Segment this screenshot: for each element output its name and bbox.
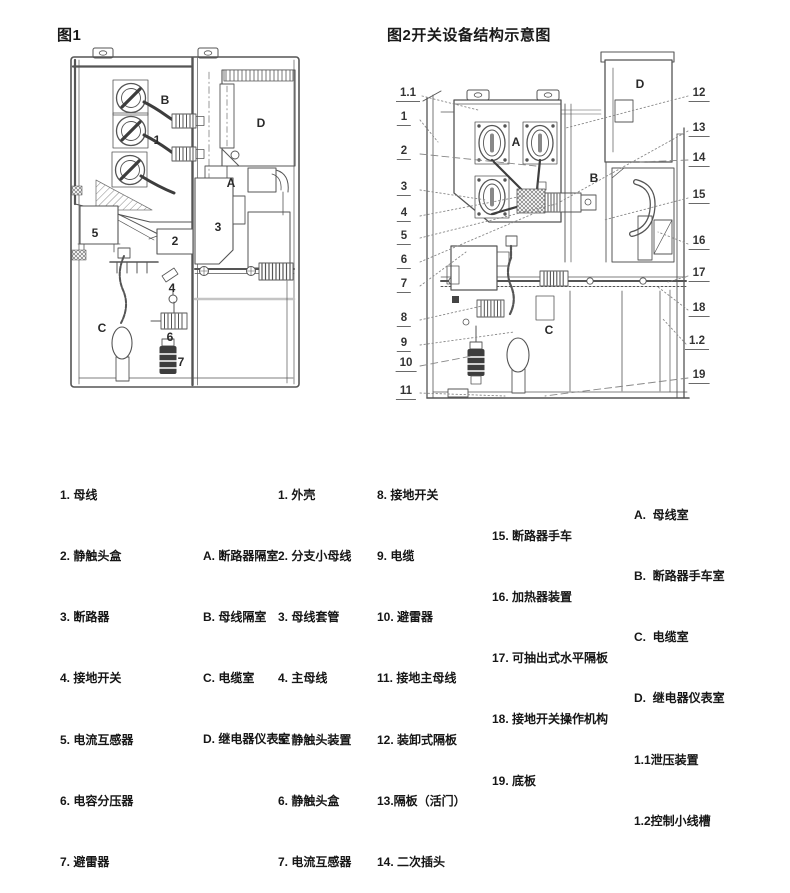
legend-item: 1.1泄压装置 xyxy=(634,750,725,770)
legend-item: 8. 接地开关 xyxy=(377,485,466,505)
legend-item: 7. 电流互感器 xyxy=(278,852,351,872)
legend-item: C. 电缆室 xyxy=(634,627,725,647)
fig1-label-1: 1 xyxy=(154,134,161,146)
fig1-label-7: 7 xyxy=(178,356,185,368)
legend-item: A. 母线室 xyxy=(634,505,725,525)
fig2-label-B: B xyxy=(590,172,599,184)
fig1-label-5: 5 xyxy=(92,227,99,239)
fig1-label-A: A xyxy=(227,177,236,189)
fig1-label-C: C xyxy=(98,322,107,334)
fig2-callout-4: 4 xyxy=(397,207,411,222)
legend-item: 2. 静触头盒 xyxy=(60,546,133,566)
legend-item: 4. 接地开关 xyxy=(60,668,133,688)
legend-item: 1. 母线 xyxy=(60,485,133,505)
page: { "titles": { "fig1": "图1", "fig2": "图2开… xyxy=(0,0,790,624)
fig2-callout-8: 8 xyxy=(397,312,411,327)
fig1-label-D: D xyxy=(257,117,266,129)
fig2-label-D: D xyxy=(636,78,645,90)
legend-item: 13.隔板（活门） xyxy=(377,791,466,811)
figure2-drawing xyxy=(420,52,689,398)
fig2-callout-11: 11 xyxy=(396,385,416,400)
fig2-callout-1-2: 1.2 xyxy=(685,335,709,350)
fig2-label-C: C xyxy=(545,324,554,336)
legend-item: 6. 电容分压器 xyxy=(60,791,133,811)
fig2-callout-3: 3 xyxy=(397,181,411,196)
legend-item: 15. 断路器手车 xyxy=(492,526,608,546)
legend-fig2-rooms: A. 母线室 B. 断路器手车室 C. 电缆室 D. 继电器仪表室 1.1泄压装… xyxy=(634,464,725,852)
legend-item: 3. 母线套管 xyxy=(278,607,351,627)
fig1-label-4: 4 xyxy=(169,282,176,294)
figure1-drawing xyxy=(71,48,299,387)
fig2-callout-7: 7 xyxy=(397,278,411,293)
fig2-callout-13: 13 xyxy=(689,122,710,137)
legend-item: 1.2控制小线槽 xyxy=(634,811,725,831)
legend-item: 10. 避雷器 xyxy=(377,607,466,627)
fig1-label-3: 3 xyxy=(215,221,222,233)
legend-fig1-items: 1. 母线 2. 静触头盒 3. 断路器 4. 接地开关 5. 电流互感器 6.… xyxy=(60,444,133,893)
legend-item: 4. 主母线 xyxy=(278,668,351,688)
fig2-callout-6: 6 xyxy=(397,254,411,269)
legend-item: 7. 避雷器 xyxy=(60,852,133,872)
legend-item: 19. 底板 xyxy=(492,771,608,791)
legend-fig2-items-a: 1. 外壳 2. 分支小母线 3. 母线套管 4. 主母线 5. 静触头装置 6… xyxy=(278,444,351,893)
fig2-callout-12: 12 xyxy=(689,87,710,102)
fig1-label-B: B xyxy=(161,94,170,106)
legend-item: 12. 装卸式隔板 xyxy=(377,730,466,750)
legend-item: 16. 加热器装置 xyxy=(492,587,608,607)
legend-item: 3. 断路器 xyxy=(60,607,133,627)
figure2-title: 图2开关设备结构示意图 xyxy=(387,24,551,45)
figure1-title: 图1 xyxy=(57,24,81,45)
fig2-callout-19: 19 xyxy=(689,369,710,384)
fig2-callout-14: 14 xyxy=(689,152,710,167)
legend-item: 6. 静触头盒 xyxy=(278,791,351,811)
legend-item: B. 断路器手车室 xyxy=(634,566,725,586)
fig2-callout-9: 9 xyxy=(397,337,411,352)
fig2-callout-5: 5 xyxy=(397,230,411,245)
fig2-callout-2: 2 xyxy=(397,145,411,160)
fig2-callout-1: 1 xyxy=(397,111,411,126)
fig2-callout-17: 17 xyxy=(689,267,710,282)
legend-item: D. 继电器仪表室 xyxy=(634,688,725,708)
fig1-label-6: 6 xyxy=(167,331,174,343)
legend-item: 2. 分支小母线 xyxy=(278,546,351,566)
fig2-callout-10: 10 xyxy=(396,357,417,372)
legend-item: 9. 电缆 xyxy=(377,546,466,566)
legend-item: 14. 二次插头 xyxy=(377,852,466,872)
fig2-callout-18: 18 xyxy=(689,302,710,317)
fig2-callout-16: 16 xyxy=(689,235,710,250)
legend-fig2-items-b: 8. 接地开关 9. 电缆 10. 避雷器 11. 接地主母线 12. 装卸式隔… xyxy=(377,444,466,893)
fig2-label-A: A xyxy=(512,136,521,148)
legend-item: 1. 外壳 xyxy=(278,485,351,505)
fig2-callout-1-1: 1.1 xyxy=(396,87,420,102)
fig2-callout-15: 15 xyxy=(689,189,710,204)
legend-item: 17. 可抽出式水平隔板 xyxy=(492,648,608,668)
legend-item: 11. 接地主母线 xyxy=(377,668,466,688)
fig1-label-2: 2 xyxy=(172,235,179,247)
legend-item: 5. 静触头装置 xyxy=(278,730,351,750)
legend-item: 18. 接地开关操作机构 xyxy=(492,709,608,729)
legend-fig2-items-c: 15. 断路器手车 16. 加热器装置 17. 可抽出式水平隔板 18. 接地开… xyxy=(492,485,608,812)
legend-item: 5. 电流互感器 xyxy=(60,730,133,750)
